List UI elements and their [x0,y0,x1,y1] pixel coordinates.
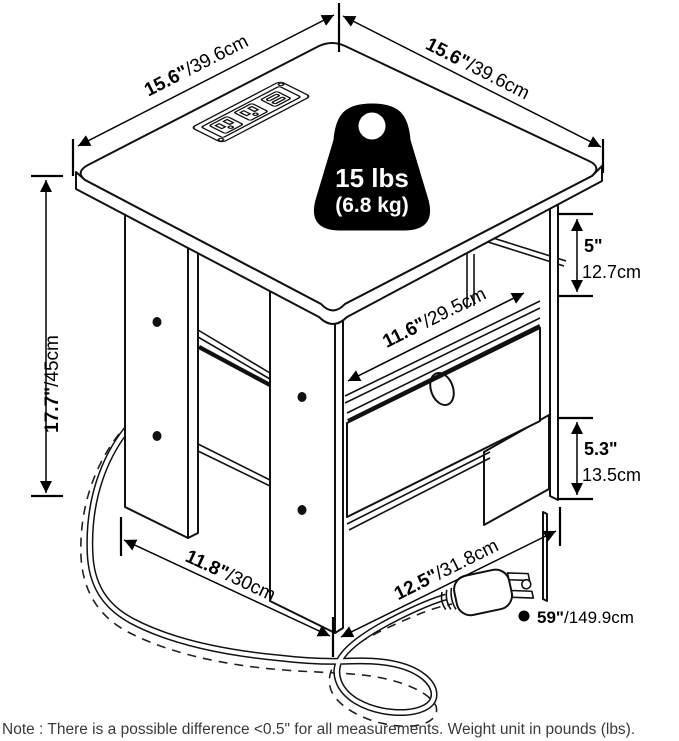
cam-hole [153,431,162,441]
end-table-diagram-svg: 15 lbs (6.8 kg) 1 [0,0,679,741]
dim-bin-height-cm-label: 13.5cm [582,465,641,485]
cam-hole [153,317,162,327]
dim-gap-cm-label: 12.7cm [582,262,641,282]
dim-cord-length-label: 59"/149.9cm [537,608,634,627]
note-text: Note : There is a possible difference <0… [2,721,635,738]
weight-kg-label: (6.8 kg) [335,194,409,217]
dimension-diagram: 15 lbs (6.8 kg) 1 [0,0,679,741]
cord-length-bullet [519,611,530,622]
dim-gap-inch-label: 5" [584,236,603,256]
right-panel [543,202,558,601]
cam-hole [298,392,307,402]
dim-height-label: 17.7"/45cm [42,335,63,433]
left-leg [125,210,198,538]
dim-depth-left-label: 11.8"/30cm [182,546,279,606]
dim-bin-height-inch-label: 5.3" [584,439,618,459]
front-leg [270,288,343,633]
cam-hole [298,505,307,515]
weight-lbs-label: 15 lbs [335,163,409,193]
